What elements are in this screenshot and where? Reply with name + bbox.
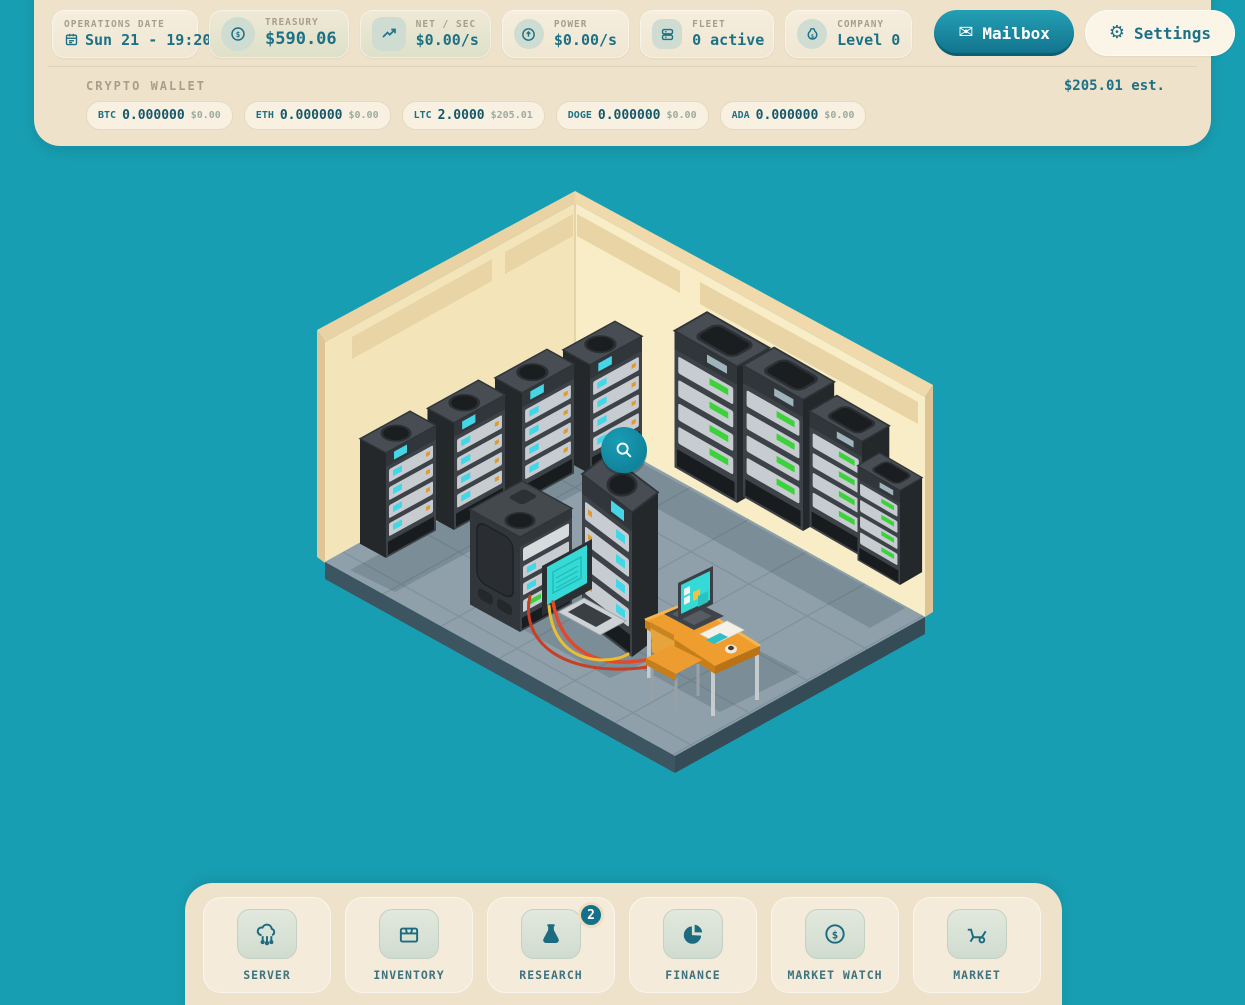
operations-date-card: OPERATIONS DATE Sun 21 - 19:20 <box>52 10 198 58</box>
coin-amount: 2.0000 <box>438 108 485 123</box>
nav-tile: $ <box>805 909 865 959</box>
box-icon <box>396 921 422 947</box>
coin-symbol: ETH <box>256 110 274 121</box>
nav-tile <box>663 909 723 959</box>
topbar-divider <box>48 66 1197 67</box>
cart-icon <box>964 921 990 947</box>
nav-button-inventory[interactable]: INVENTORY <box>345 897 473 993</box>
stat-label: COMPANY <box>837 19 900 31</box>
money-bag-icon: $ <box>804 26 821 43</box>
server-stack-icon <box>659 26 676 43</box>
coin-usd-value: $0.00 <box>191 110 221 121</box>
nav-tile <box>379 909 439 959</box>
coin-usd-value: $205.01 <box>491 110 533 121</box>
stat-label: OPERATIONS DATE <box>64 19 211 31</box>
coin-amount: 0.000000 <box>598 108 661 123</box>
coin-symbol: ADA <box>732 110 750 121</box>
flask-icon <box>538 921 564 947</box>
nav-button-market[interactable]: MARKET <box>913 897 1041 993</box>
svg-text:$: $ <box>832 928 839 941</box>
nav-button-server[interactable]: SERVER <box>203 897 331 993</box>
nav-tile <box>237 909 297 959</box>
crypto-wallet-title: CRYPTO WALLET <box>86 79 206 93</box>
stat-label: NET / SEC <box>416 19 479 31</box>
nav-tile <box>521 909 581 959</box>
coin-symbol: LTC <box>414 110 432 121</box>
coin-amount: 0.000000 <box>280 108 343 123</box>
stat-value: Level 0 <box>837 31 900 50</box>
coin-pill-doge[interactable]: DOGE 0.000000 $0.00 <box>556 101 709 130</box>
crypto-wallet-pills: BTC 0.000000 $0.00 ETH 0.000000 $0.00 LT… <box>86 101 866 130</box>
pie-chart-icon <box>680 921 706 947</box>
coin-symbol: DOGE <box>568 110 592 121</box>
inspect-room-button[interactable] <box>601 427 647 473</box>
stat-label: TREASURY <box>265 17 337 29</box>
svg-text:$: $ <box>236 30 241 39</box>
stat-label: POWER <box>554 19 617 31</box>
nav-button-market-watch[interactable]: $ MARKET WATCH <box>771 897 899 993</box>
nav-label: MARKET WATCH <box>787 968 882 982</box>
server-room-illustration <box>0 0 1245 1005</box>
company-card: $ COMPANY Level 0 <box>785 10 912 58</box>
coin-amount: 0.000000 <box>756 108 819 123</box>
stat-value: 0 active <box>692 31 764 50</box>
nav-button-finance[interactable]: FINANCE <box>629 897 757 993</box>
treasury-card: $ TREASURY $590.06 <box>209 10 349 58</box>
stat-value: $590.06 <box>265 29 337 50</box>
trend-up-icon <box>380 25 398 43</box>
mailbox-button[interactable]: ✉ Mailbox <box>934 10 1074 56</box>
nav-button-research[interactable]: RESEARCH 2 <box>487 897 615 993</box>
nav-label: FINANCE <box>665 968 720 982</box>
power-icon <box>520 26 537 43</box>
fleet-card: FLEET 0 active <box>640 10 774 58</box>
game-stage: OPERATIONS DATE Sun 21 - 19:20 <box>0 0 1245 1005</box>
svg-text:$: $ <box>810 34 814 40</box>
coin-amount: 0.000000 <box>122 108 185 123</box>
coin-usd-value: $0.00 <box>667 110 697 121</box>
nav-label: MARKET <box>953 968 1001 982</box>
dollar-coin-icon: $ <box>229 25 247 43</box>
coin-pill-eth[interactable]: ETH 0.000000 $0.00 <box>244 101 391 130</box>
envelope-icon: ✉ <box>958 24 973 42</box>
stat-label: FLEET <box>692 19 764 31</box>
research-badge: 2 <box>578 902 604 928</box>
server-cabinet <box>470 481 572 632</box>
gear-icon: ⚙ <box>1109 24 1125 42</box>
settings-button[interactable]: ⚙ Settings <box>1085 10 1235 56</box>
coin-pill-ltc[interactable]: LTC 2.0000 $205.01 <box>402 101 545 130</box>
wallet-estimate: $205.01 est. <box>1064 78 1165 94</box>
nav-label: SERVER <box>243 968 291 982</box>
top-status-bar: OPERATIONS DATE Sun 21 - 19:20 <box>34 0 1211 146</box>
mailbox-label: Mailbox <box>982 24 1049 43</box>
coin-pill-btc[interactable]: BTC 0.000000 $0.00 <box>86 101 233 130</box>
stat-value: Sun 21 - 19:20 <box>85 31 211 50</box>
bottom-nav-bar: SERVER INVENTORY RESEA <box>185 883 1062 1005</box>
stat-value: $0.00/s <box>416 31 479 50</box>
nav-label: INVENTORY <box>373 968 444 982</box>
coin-usd-value: $0.00 <box>348 110 378 121</box>
settings-label: Settings <box>1134 24 1211 43</box>
coin-pill-ada[interactable]: ADA 0.000000 $0.00 <box>720 101 867 130</box>
stat-value: $0.00/s <box>554 31 617 50</box>
calendar-icon <box>64 32 79 47</box>
cloud-network-icon <box>254 921 280 947</box>
coin-usd-value: $0.00 <box>824 110 854 121</box>
power-card: POWER $0.00/s <box>502 10 629 58</box>
net-per-sec-card: NET / SEC $0.00/s <box>360 10 491 58</box>
nav-label: RESEARCH <box>519 968 582 982</box>
dollar-circle-icon: $ <box>822 921 848 947</box>
nav-tile <box>947 909 1007 959</box>
magnifier-icon <box>613 439 635 461</box>
coffee-cup <box>725 645 737 654</box>
coin-symbol: BTC <box>98 110 116 121</box>
